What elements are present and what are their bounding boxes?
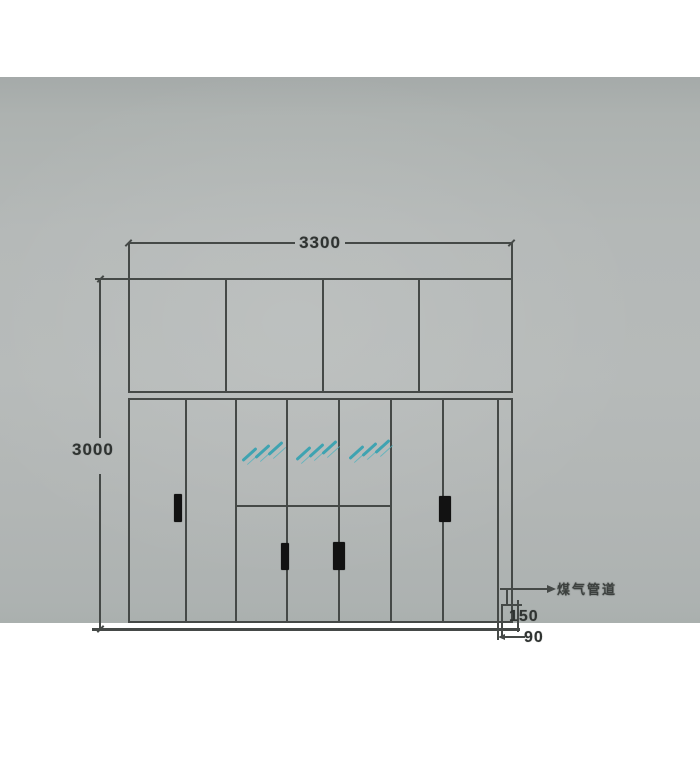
lower-door-divider-1 <box>185 398 187 623</box>
mirror-bottom-rail <box>235 505 390 507</box>
dim-90-line <box>504 636 525 638</box>
photographed-paper: 3300 3000 <box>0 77 700 623</box>
dim-3000-label: 3000 <box>72 441 114 459</box>
pipe-chase-divider <box>497 398 499 623</box>
upper-cabinet-divider-1 <box>225 278 227 393</box>
gas-pipe-leader-line <box>500 588 547 590</box>
dim-3000-line-lower <box>99 474 101 630</box>
dim-3300-label: 3300 <box>293 234 347 252</box>
lower-door-divider-4 <box>338 398 340 623</box>
door-handle-center-left <box>281 543 289 570</box>
dim-3300-line-left <box>128 242 295 244</box>
base-line <box>92 628 520 631</box>
dim-3300-line-right <box>345 242 512 244</box>
door-handle-right-pair <box>439 496 451 522</box>
upper-cabinet-divider-2 <box>322 278 324 393</box>
dim-150-label: 150 <box>509 608 539 626</box>
gas-pipe-leader-arrow <box>547 585 556 593</box>
pipe-box-left-edge <box>501 604 503 638</box>
upper-cabinet-divider-3 <box>418 278 420 393</box>
wardrobe-elevation-drawing: 3300 3000 <box>0 77 700 777</box>
lower-door-divider-3 <box>286 398 288 623</box>
lower-door-divider-2 <box>235 398 237 623</box>
dim-90-label: 90 <box>524 629 544 647</box>
dim-3000-line-upper <box>99 278 101 438</box>
lower-door-divider-5 <box>390 398 392 623</box>
door-handle-center-right <box>333 542 345 570</box>
upper-cabinet-frame <box>128 278 513 393</box>
dim-150-top-tick <box>502 604 522 606</box>
dim-3300-ext-right <box>511 242 513 280</box>
dim-90-arrow <box>498 634 505 640</box>
dim-3300-ext-left <box>128 242 130 280</box>
door-handle-left-pair <box>174 494 182 522</box>
gas-pipe-label: 煤气管道 <box>557 581 617 599</box>
